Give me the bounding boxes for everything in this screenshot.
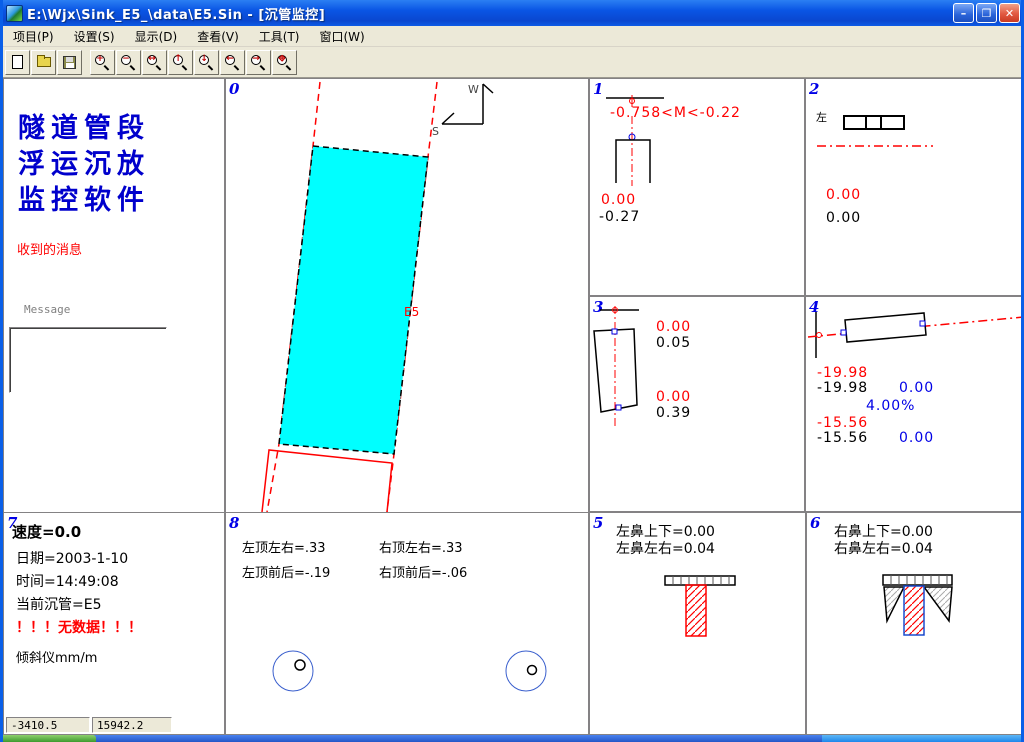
beam-ticks xyxy=(673,576,729,585)
left-nose-pin xyxy=(686,585,706,636)
trim-red-value: 0.00 xyxy=(601,192,636,208)
info-panel: 隧道管段 浮运沉放 监控软件 收到的消息 Message xyxy=(3,78,225,513)
message-box[interactable] xyxy=(9,327,167,393)
right-nose-drawing xyxy=(807,513,1024,734)
left-nose-drawing xyxy=(590,513,805,734)
menu-bar: 项目(P) 设置(S) 显示(D) 查看(V) 工具(T) 窗口(W) xyxy=(3,26,1021,47)
date-readout: 日期=2003-1-10 xyxy=(16,548,128,568)
jack-top-panel: 8 左顶左右=.33 右顶左右=.33 左顶前后=-.19 右顶前后=-.06 xyxy=(225,512,589,735)
grade-percent: 4.00% xyxy=(866,398,915,414)
right-jack-pin xyxy=(528,666,537,675)
depth-red-bottom: -15.56 xyxy=(817,415,868,431)
toolbar-separator xyxy=(83,50,90,75)
side-elevation-panel: 2 左 0.00 0.00 xyxy=(805,78,1024,296)
open-file-button[interactable] xyxy=(31,50,56,75)
speed-readout: 速度=0.0 xyxy=(12,521,81,542)
start-button[interactable] xyxy=(0,735,96,742)
stern-marker xyxy=(841,330,846,335)
depth-black-top: -19.98 xyxy=(817,380,868,396)
right-guide-wedge xyxy=(924,587,952,621)
zoom-down-icon: ↓ xyxy=(198,54,215,71)
compass-up-label: W xyxy=(468,83,479,96)
menu-settings[interactable]: 设置(S) xyxy=(64,26,125,47)
side-black-value: 0.00 xyxy=(826,210,861,226)
zoom-out-button[interactable]: − xyxy=(116,50,141,75)
right-nose-panel: 6 右鼻上下=0.00 右鼻左右=0.04 xyxy=(806,512,1024,735)
app-icon xyxy=(6,5,23,22)
nose-beam xyxy=(883,575,952,585)
menu-tools[interactable]: 工具(T) xyxy=(249,26,310,47)
tube-cell-left xyxy=(844,116,866,129)
pipe-side-outline xyxy=(845,313,926,342)
depth-red-top: -19.98 xyxy=(817,365,868,381)
menu-view[interactable]: 查看(V) xyxy=(187,26,249,47)
target-box-outline xyxy=(262,450,392,512)
pan-left-button[interactable]: ← xyxy=(220,50,245,75)
no-data-warning: ！！！无数据！！！ xyxy=(16,617,142,637)
zoom-width-button[interactable]: ↔ xyxy=(142,50,167,75)
section-outline xyxy=(616,140,650,183)
heading-red-top: 0.00 xyxy=(656,319,691,335)
jack-top-drawing xyxy=(226,513,588,734)
left-jack-pin xyxy=(295,660,305,670)
application-window: E:\Wjx\Sink_E5_\data\E5.Sin - [沉管监控] – ❐… xyxy=(0,0,1024,742)
message-label: Message xyxy=(24,303,70,316)
open-folder-icon xyxy=(37,57,51,67)
marker-circle xyxy=(817,333,822,338)
left-jack-circle xyxy=(273,651,313,691)
depth-blue-bottom: 0.00 xyxy=(899,430,934,446)
zoom-left-icon: ← xyxy=(224,54,241,71)
side-label: 左 xyxy=(816,109,827,125)
pan-down-button[interactable]: ↓ xyxy=(194,50,219,75)
right-nose-pin xyxy=(904,586,924,635)
taskbar-window-button[interactable] xyxy=(822,735,1024,742)
app-title-text: 隧道管段 浮运沉放 监控软件 xyxy=(18,111,150,219)
depth-black-bottom: -15.56 xyxy=(817,430,868,446)
right-jack-circle xyxy=(506,651,546,691)
menu-display[interactable]: 显示(D) xyxy=(125,26,188,47)
minimize-button[interactable]: – xyxy=(953,3,974,23)
nose-beam xyxy=(665,576,735,585)
toolbar: + − ↔ ↑ ↓ ← → ↔↕ xyxy=(3,47,1021,78)
telemetry-panel: 7 速度=0.0 日期=2003-1-10 时间=14:49:08 当前沉管=E… xyxy=(3,512,225,735)
stern-marker xyxy=(616,405,621,410)
menu-project[interactable]: 项目(P) xyxy=(3,26,64,47)
compass-arrow-left xyxy=(442,113,454,124)
status-coord-y: 15942.2 xyxy=(92,717,172,733)
inclinometer-label: 倾斜仪mm/m xyxy=(16,647,97,666)
heading-panel: 3 0.00 0.05 0.00 0.39 xyxy=(589,296,805,512)
zoom-all-icon: ↔↕ xyxy=(276,54,293,71)
plan-view-panel: 0 W S E5 xyxy=(225,78,589,513)
zoom-right-icon: → xyxy=(250,54,267,71)
bow-marker xyxy=(612,329,617,334)
segment-id-label: E5 xyxy=(404,305,419,319)
depth-profile-panel: 4 -19.98 -19.98 0.00 4.00% -15.56 -15.56… xyxy=(805,296,1024,512)
tube-cell-right xyxy=(881,116,904,129)
zoom-in-button[interactable]: + xyxy=(90,50,115,75)
title-bar[interactable]: E:\Wjx\Sink_E5_\data\E5.Sin - [沉管监控] – ❐… xyxy=(0,0,1024,26)
left-nose-panel: 5 左鼻上下=0.00 左鼻左右=0.04 xyxy=(589,512,806,735)
window-title: E:\Wjx\Sink_E5_\data\E5.Sin - [沉管监控] xyxy=(27,4,953,23)
menu-window[interactable]: 窗口(W) xyxy=(309,26,374,47)
restore-button[interactable]: ❐ xyxy=(976,3,997,23)
current-segment-readout: 当前沉管=E5 xyxy=(16,594,101,614)
new-file-icon xyxy=(12,55,23,69)
depth-blue-top: 0.00 xyxy=(899,380,934,396)
beam-ticks xyxy=(891,575,947,585)
zoom-out-icon: − xyxy=(120,54,137,71)
time-readout: 时间=14:49:08 xyxy=(16,571,119,591)
heading-drawing xyxy=(590,297,804,511)
save-floppy-icon xyxy=(63,56,76,69)
compass-left-label: S xyxy=(432,125,439,138)
bow-marker xyxy=(920,321,925,326)
heading-red-bottom: 0.00 xyxy=(656,389,691,405)
zoom-width-icon: ↔ xyxy=(146,54,163,71)
side-red-value: 0.00 xyxy=(826,187,861,203)
zoom-all-button[interactable]: ↔↕ xyxy=(272,50,297,75)
save-file-button[interactable] xyxy=(57,50,82,75)
left-guide-wedge xyxy=(884,587,904,621)
heading-black-bottom: 0.39 xyxy=(656,405,691,421)
trim-range-text: -0.758<M<-0.22 xyxy=(610,105,741,121)
taskbar[interactable] xyxy=(0,735,1024,742)
zoom-up-icon: ↑ xyxy=(172,54,189,71)
status-coord-x: -3410.5 xyxy=(6,717,90,733)
trim-gauge-panel: 1 -0.758<M<-0.22 0.00 -0.27 xyxy=(589,78,805,296)
pipe-segment-shape[interactable] xyxy=(279,146,428,454)
close-button[interactable]: ✕ xyxy=(999,3,1020,23)
heading-black-top: 0.05 xyxy=(656,335,691,351)
pan-up-button[interactable]: ↑ xyxy=(168,50,193,75)
new-file-button[interactable] xyxy=(5,50,30,75)
tube-cell-mid xyxy=(866,116,881,129)
pan-right-button[interactable]: → xyxy=(246,50,271,75)
zoom-in-icon: + xyxy=(94,54,111,71)
compass-arrow-up xyxy=(483,84,493,93)
trim-black-value: -0.27 xyxy=(599,209,640,225)
plan-view-drawing: W S E5 xyxy=(226,79,588,512)
received-messages-label: 收到的消息 xyxy=(17,239,82,258)
